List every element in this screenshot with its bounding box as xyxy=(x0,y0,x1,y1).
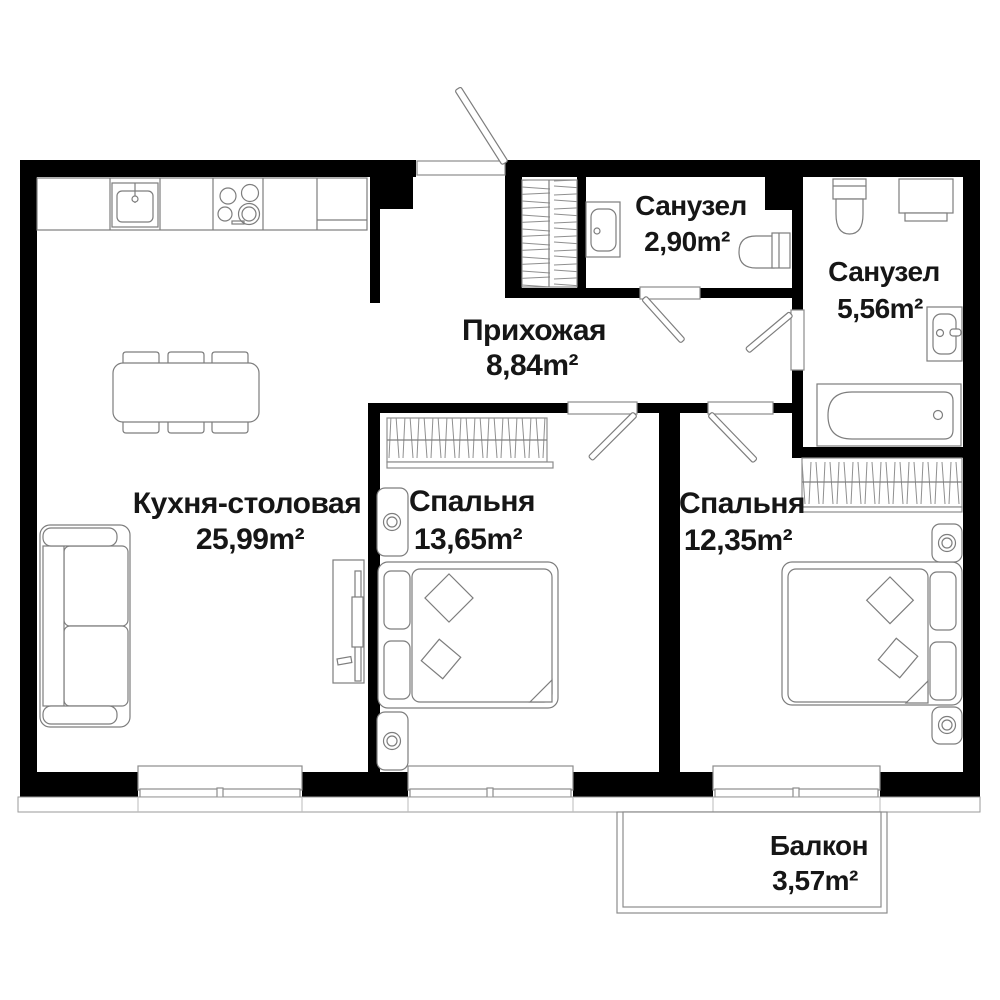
washing-machine-icon xyxy=(899,179,953,221)
vanity-sink-icon xyxy=(927,307,962,361)
bathtub-icon xyxy=(817,384,961,446)
closet-icon xyxy=(522,180,577,287)
kitchen-counter-icon xyxy=(37,178,367,230)
toilet-icon xyxy=(739,233,790,268)
window-icon xyxy=(138,766,302,798)
room-label-bathroom-small-name: Санузел xyxy=(635,190,747,221)
facade-sill xyxy=(18,797,980,812)
room-label-bathroom-small-area: 2,90m² xyxy=(644,226,730,257)
window-icon xyxy=(408,766,573,798)
room-label-bathroom-large-name: Санузел xyxy=(828,256,940,287)
toilet-icon xyxy=(833,179,866,234)
room-label-balcony-name: Балкон xyxy=(770,830,868,861)
wardrobe-icon xyxy=(802,458,962,512)
double-bed-icon xyxy=(378,562,558,708)
floor-plan: Кухня-столовая 25,99m² Прихожая 8,84m² С… xyxy=(0,0,1000,1000)
vanity-sink-icon xyxy=(586,202,620,257)
dining-table-icon xyxy=(113,352,259,433)
room-label-kitchen-area: 25,99m² xyxy=(196,523,305,556)
room-label-bedroom-1-name: Спальня xyxy=(409,485,535,518)
room-label-bedroom-2-area: 12,35m² xyxy=(684,524,793,557)
balcony-icon xyxy=(617,812,887,913)
tv-unit-icon xyxy=(333,560,364,683)
room-label-hallway-area: 8,84m² xyxy=(486,349,579,382)
window-icon xyxy=(713,766,880,798)
room-label-balcony-area: 3,57m² xyxy=(772,865,858,896)
wardrobe-icon xyxy=(387,418,553,468)
room-label-kitchen-name: Кухня-столовая xyxy=(133,487,361,520)
sofa-icon xyxy=(40,525,130,727)
room-label-bedroom-2-name: Спальня xyxy=(679,487,805,520)
room-label-hallway-name: Прихожая xyxy=(462,314,606,347)
room-label-bathroom-large-area: 5,56m² xyxy=(837,293,923,324)
kitchen-sink-icon xyxy=(112,183,158,227)
double-bed-icon xyxy=(782,562,962,705)
room-label-bedroom-1-area: 13,65m² xyxy=(414,523,523,556)
floor-plan-canvas: Кухня-столовая 25,99m² Прихожая 8,84m² С… xyxy=(0,0,1000,1000)
